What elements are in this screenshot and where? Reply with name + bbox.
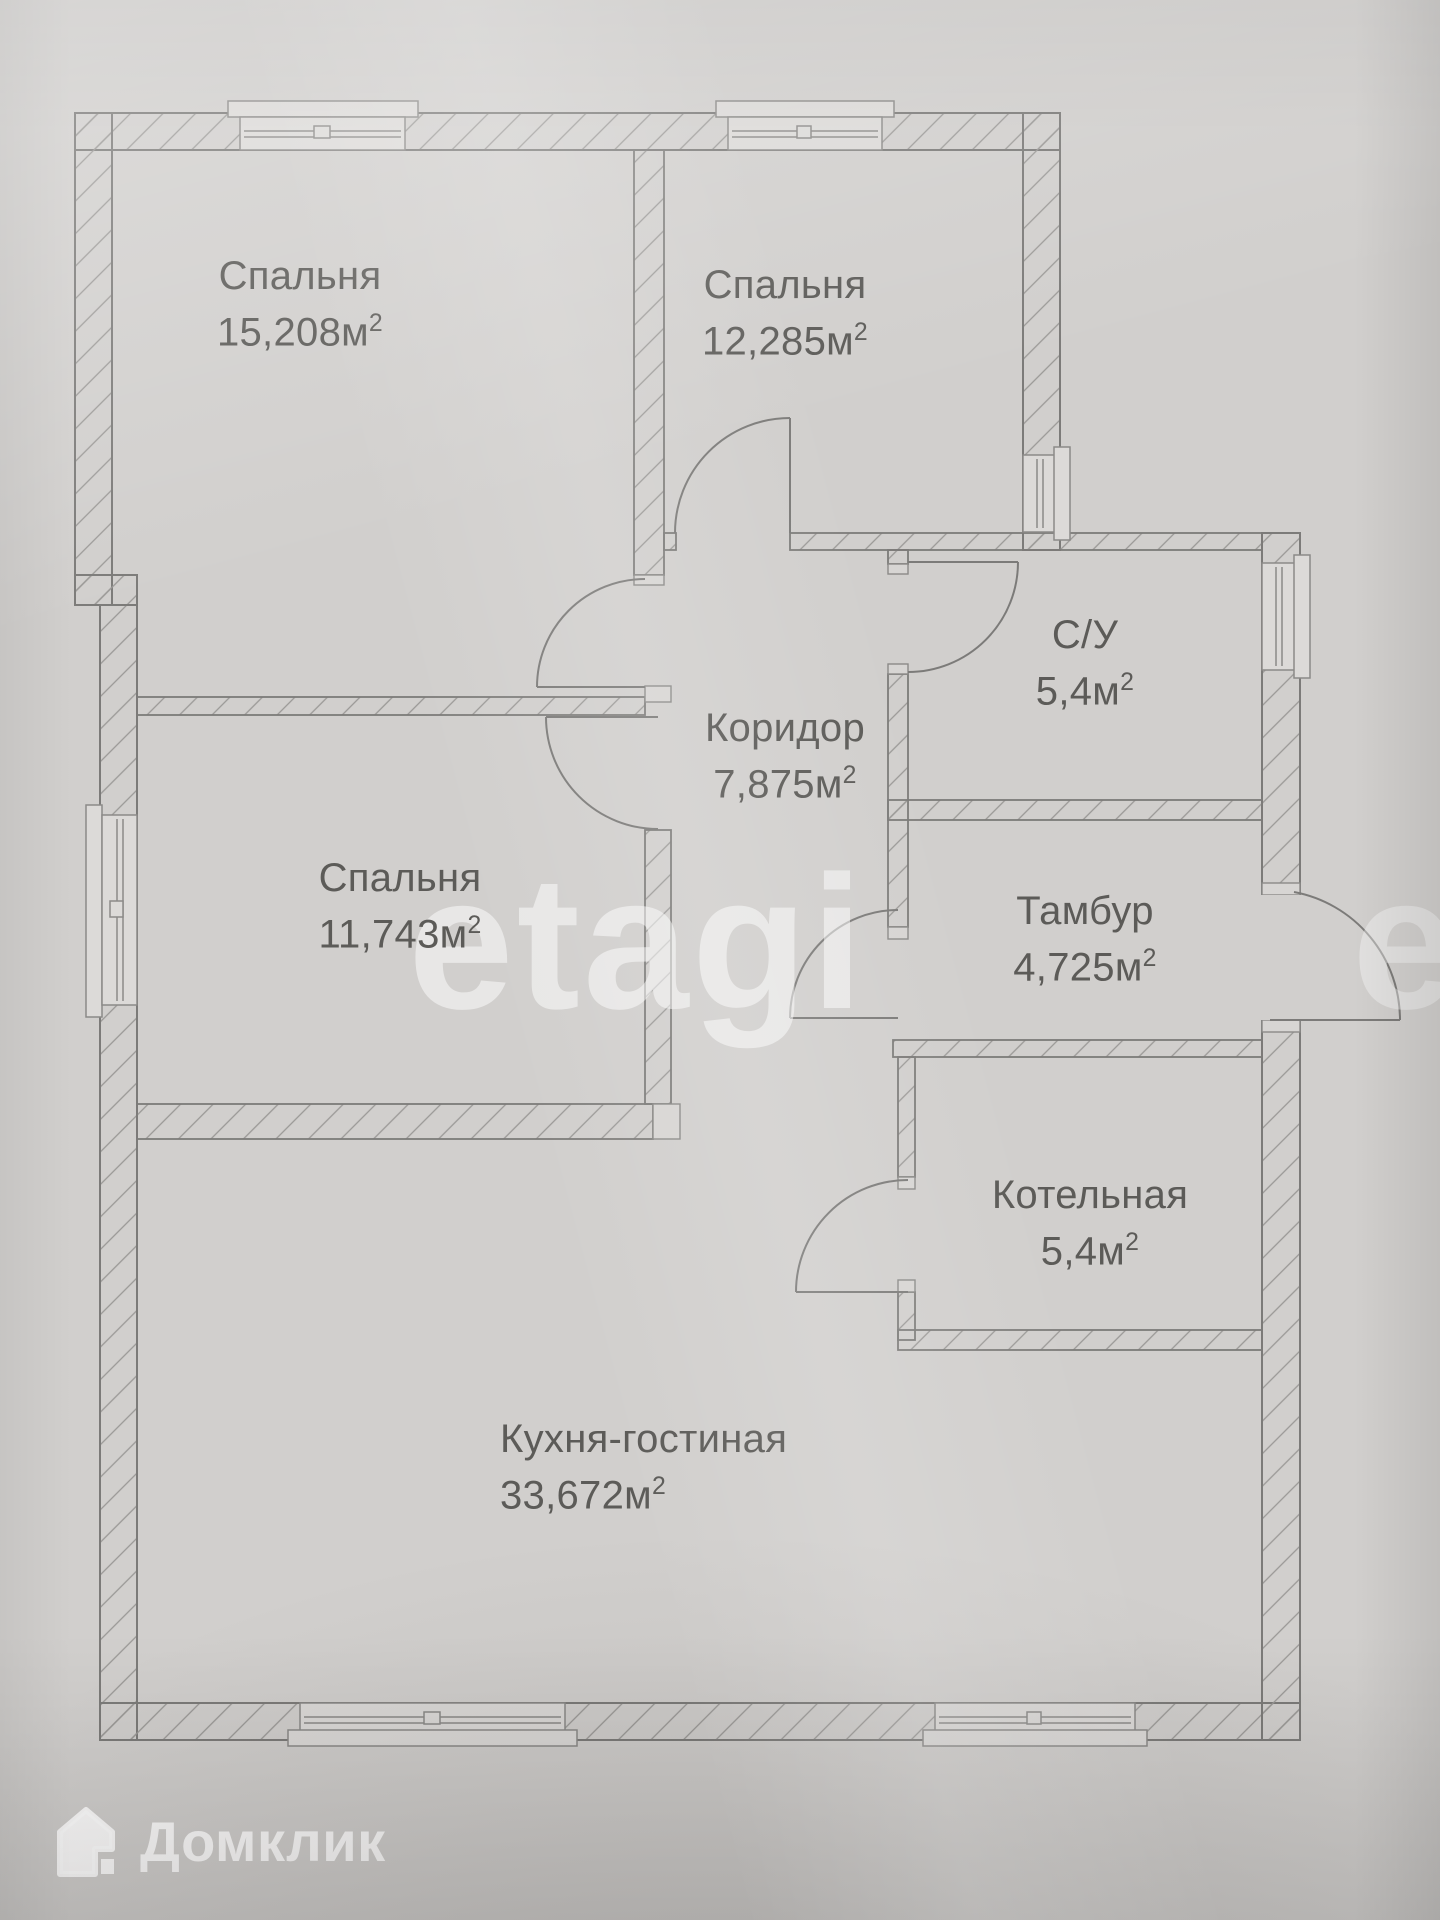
domclick-logo: Домклик [50, 1802, 386, 1880]
room-area: 4,725м2 [965, 935, 1205, 991]
room-label-vestibule: Тамбур 4,725м2 [965, 888, 1205, 991]
room-label-boiler: Котельная 5,4м2 [955, 1172, 1225, 1275]
room-area: 5,4м2 [955, 1219, 1225, 1275]
room-bedroom-1 [112, 150, 634, 697]
window-bathroom [1262, 555, 1310, 678]
window-kitchen-right [923, 1703, 1147, 1746]
window-bedroom-1 [228, 101, 418, 150]
room-area: 33,672м2 [500, 1463, 930, 1519]
room-label-bedroom-3: Спальня 11,743м2 [255, 855, 545, 958]
room-label-corridor: Коридор 7,875м2 [645, 705, 925, 808]
room-label-bedroom-2: Спальня 12,285м2 [645, 262, 925, 365]
room-area: 11,743м2 [255, 902, 545, 958]
room-area: 5,4м2 [1000, 659, 1170, 715]
room-label-bedroom-1: Спальня 15,208м2 [155, 253, 445, 356]
room-name: Коридор [645, 705, 925, 752]
room-name: Спальня [155, 253, 445, 300]
room-area: 7,875м2 [645, 752, 925, 808]
window-bedroom-3 [86, 805, 137, 1017]
window-bedroom-2 [716, 101, 894, 150]
window-bedroom-2-side [1023, 447, 1070, 540]
room-label-bathroom: С/У 5,4м2 [1000, 612, 1170, 715]
room-name: Кухня-гостиная [500, 1416, 930, 1463]
room-name: Спальня [255, 855, 545, 902]
room-name: С/У [1000, 612, 1170, 659]
room-name: Тамбур [965, 888, 1205, 935]
room-label-kitchen: Кухня-гостиная 33,672м2 [500, 1416, 930, 1519]
room-area: 12,285м2 [645, 309, 925, 365]
entrance-opening [1259, 895, 1303, 1020]
house-icon [50, 1802, 122, 1880]
room-name: Котельная [955, 1172, 1225, 1219]
window-kitchen-left [288, 1703, 577, 1746]
brand-name: Домклик [140, 1809, 386, 1874]
room-area: 15,208м2 [155, 300, 445, 356]
etagi-watermark-fragment: etagi [1352, 848, 1440, 1038]
room-name: Спальня [645, 262, 925, 309]
